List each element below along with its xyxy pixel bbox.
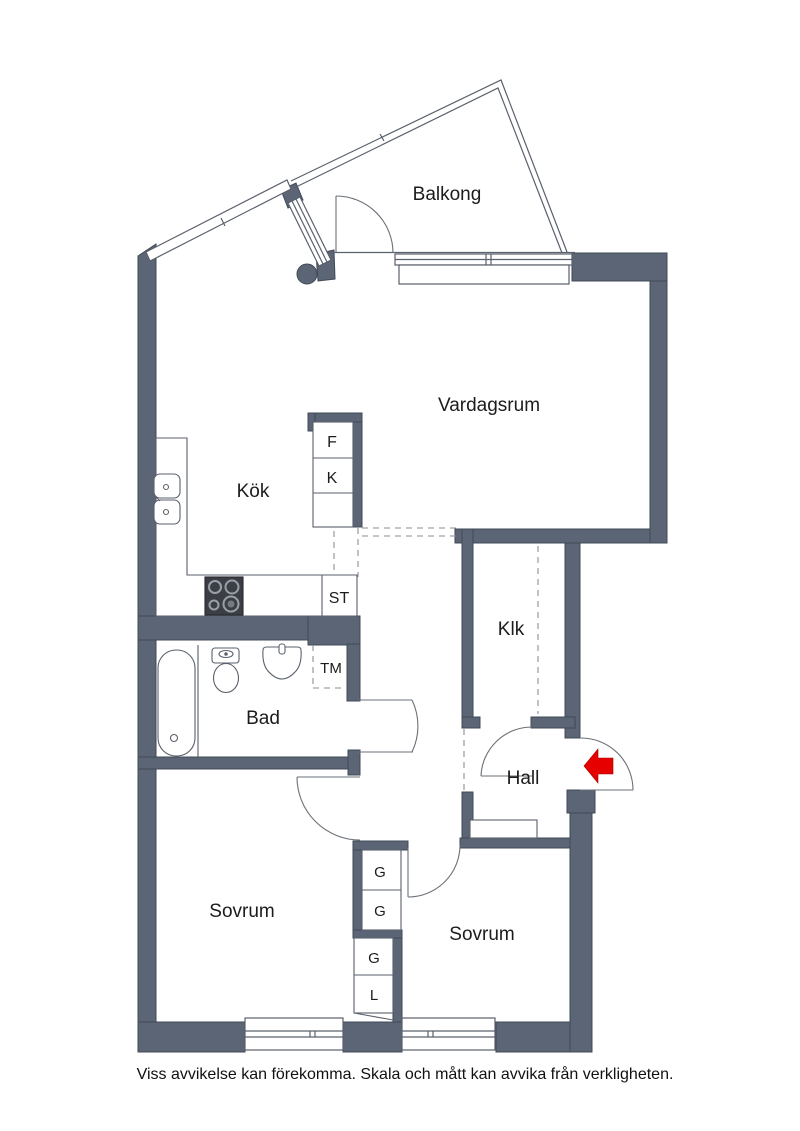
balcony-railing: [291, 80, 567, 253]
label-wardrobe2: G: [374, 903, 386, 920]
wall-entry-north: [565, 543, 580, 738]
angled-window-long: [146, 180, 291, 261]
wall-bottom-left: [138, 1022, 245, 1052]
label-st: ST: [329, 590, 350, 607]
bedroom2-window: [402, 1018, 495, 1050]
wall-entry-step: [567, 790, 595, 813]
disclaimer-caption: Viss avvikelse kan förekomma. Skala och …: [137, 1065, 674, 1083]
label-closet: Klk: [498, 619, 525, 640]
label-wardrobe3: G: [368, 950, 380, 967]
angled-window-short: [288, 197, 331, 266]
wall-klk-south-a: [462, 717, 480, 728]
label-balcony: Balkong: [413, 184, 482, 205]
label-kitchen: Kök: [237, 481, 270, 502]
bath-door: [358, 700, 418, 752]
wall-bath-north-tm: [308, 616, 360, 645]
label-fridge: F: [327, 434, 337, 451]
wall-right-lower: [570, 811, 592, 1052]
wall-closet-mid: [353, 930, 402, 938]
wall-fk-east: [353, 422, 362, 527]
balcony-door: [336, 196, 393, 253]
wall-bath-east: [347, 644, 360, 701]
wall-living-south: [455, 529, 667, 543]
kitchen-fixtures: [152, 422, 357, 616]
hall-cabinet: [470, 820, 537, 838]
wall-corridor-stub: [348, 750, 360, 775]
label-hall: Hall: [507, 768, 540, 789]
label-bedroom1: Sovrum: [209, 901, 274, 922]
label-living: Vardagsrum: [438, 395, 540, 416]
wall-klk-west: [462, 529, 473, 728]
label-linen: L: [370, 987, 378, 1004]
wall-left: [138, 244, 156, 1052]
balcony-window: [320, 253, 575, 285]
label-washer: TM: [320, 660, 342, 677]
wall-right-upper: [650, 253, 667, 543]
bedroom2-door: [408, 845, 460, 897]
wall-fk-top: [308, 413, 362, 422]
bedroom1-window: [245, 1018, 343, 1050]
column-icon: [297, 264, 317, 284]
wall-bottom-mid: [343, 1022, 402, 1052]
washbasin-icon: [263, 644, 301, 679]
wall-closet-east: [393, 938, 402, 1022]
label-bedroom2: Sovrum: [449, 924, 514, 945]
wall-hall-south: [460, 838, 570, 848]
wall-closet-west: [353, 850, 362, 930]
floorplan-page: Balkong Vardagsrum Kök Klk Bad Hall Sovr…: [0, 0, 800, 1131]
wall-top-right: [572, 253, 667, 281]
toilet-icon: [212, 648, 239, 693]
floorplan-drawing: Balkong Vardagsrum Kök Klk Bad Hall Sovr…: [0, 0, 800, 1131]
wall-closet-top: [353, 841, 408, 850]
label-freezer: K: [327, 470, 338, 487]
entrance-arrow-icon: [584, 749, 613, 783]
bedroom1-door: [297, 777, 360, 840]
wall-bath-south: [138, 757, 348, 769]
stove-icon: [205, 577, 243, 615]
wall-klk-south-b: [531, 717, 575, 728]
bathtub-icon: [158, 650, 195, 756]
label-wardrobe1: G: [374, 864, 386, 881]
label-bath: Bad: [246, 708, 280, 729]
